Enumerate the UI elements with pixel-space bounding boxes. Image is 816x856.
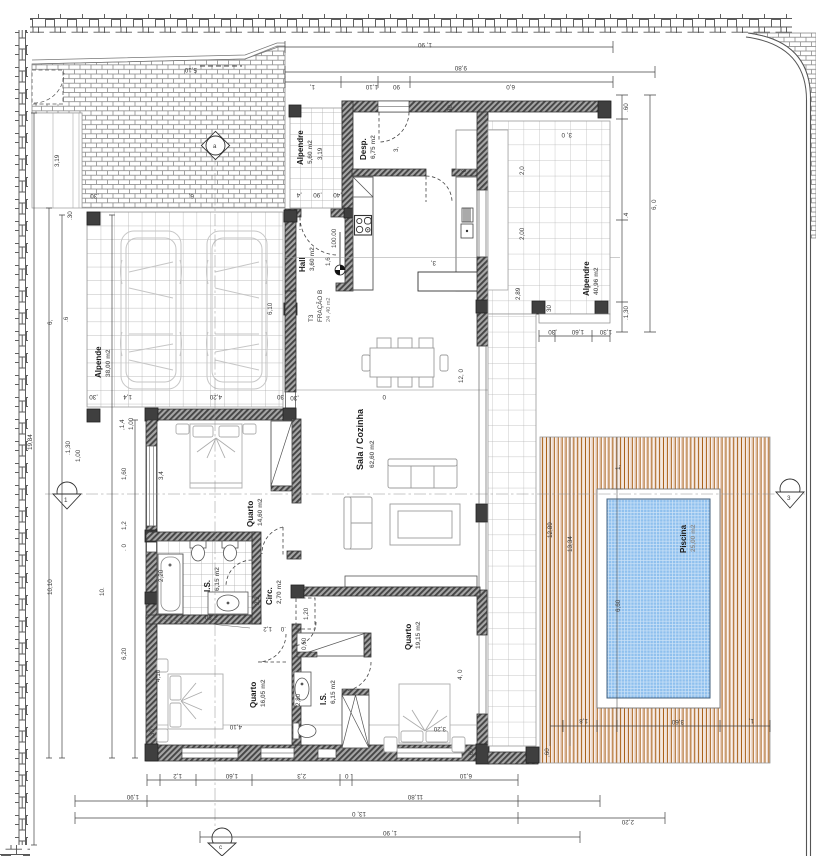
svg-text:.6: .6 — [63, 316, 70, 322]
svg-text:3,60: 3,60 — [671, 718, 684, 725]
svg-text:.0: .0 — [280, 625, 286, 632]
svg-text:16,05 m2: 16,05 m2 — [260, 679, 267, 707]
svg-text:1, 90: 1, 90 — [382, 829, 397, 836]
svg-text:1,: 1, — [748, 717, 754, 724]
svg-text:6,: 6, — [47, 319, 54, 325]
svg-text:.30: .30 — [67, 211, 74, 220]
svg-text:1,60: 1,60 — [121, 467, 128, 480]
svg-text:,30: ,30 — [290, 394, 299, 401]
svg-text:4,10: 4,10 — [155, 669, 162, 682]
svg-text:1,20: 1,20 — [303, 607, 310, 620]
svg-text:25,00 m2: 25,00 m2 — [690, 524, 697, 552]
svg-text:30: 30 — [447, 104, 454, 112]
svg-text:1,2: 1,2 — [263, 625, 272, 632]
svg-text:1,00: 1,00 — [75, 449, 82, 462]
svg-text:100.00: 100.00 — [331, 228, 338, 248]
svg-text:3,19: 3,19 — [317, 147, 324, 160]
svg-text:3, 0: 3, 0 — [561, 131, 572, 138]
svg-text:6,60: 6,60 — [615, 599, 622, 612]
svg-text:6,10: 6,10 — [267, 302, 274, 315]
svg-text:2,20: 2,20 — [158, 569, 165, 582]
svg-text:,40: ,40 — [333, 191, 342, 198]
svg-text:11,80: 11,80 — [407, 793, 423, 800]
svg-text:4,10: 4,10 — [229, 723, 242, 730]
svg-text:. 0: . 0 — [121, 544, 128, 551]
svg-text:19,84: 19,84 — [27, 434, 34, 450]
svg-text:1: 1 — [64, 497, 68, 504]
svg-text:2,3: 2,3 — [297, 772, 306, 779]
svg-text:6, 0: 6, 0 — [651, 199, 658, 210]
svg-text:30: 30 — [546, 304, 553, 312]
svg-text:1,: 1, — [615, 464, 622, 470]
svg-text:62,60 m2: 62,60 m2 — [369, 440, 376, 468]
svg-text:. 0: . 0 — [345, 772, 352, 779]
svg-text:13, 0: 13, 0 — [351, 810, 366, 817]
svg-text:2,20: 2,20 — [621, 818, 634, 825]
svg-text:13,34: 13,34 — [567, 536, 574, 552]
svg-text:2,2: 2,2 — [254, 596, 261, 605]
svg-text:2,70 m2: 2,70 m2 — [276, 580, 283, 604]
svg-text:Desp.: Desp. — [359, 138, 368, 160]
svg-text:Circ.: Circ. — [265, 587, 274, 605]
svg-text:2,00: 2,00 — [519, 227, 526, 240]
svg-text:6,15 m2: 6,15 m2 — [330, 680, 337, 704]
svg-text:c: c — [219, 844, 222, 851]
svg-text:.4: .4 — [623, 212, 630, 218]
svg-text:3,20: 3,20 — [433, 725, 446, 732]
svg-text:1, 90: 1, 90 — [417, 41, 432, 48]
svg-text:,60: ,60 — [544, 748, 551, 757]
svg-text:3,19: 3,19 — [54, 154, 61, 167]
svg-text:.1,30: .1,30 — [623, 305, 630, 320]
svg-text:Alpende: Alpende — [94, 346, 103, 378]
svg-text:,90: ,90 — [313, 191, 322, 198]
svg-text:1,10: 1,10 — [365, 83, 378, 90]
svg-text:T3: T3 — [308, 314, 315, 322]
svg-text:Piscina: Piscina — [679, 524, 688, 553]
svg-text:1,90: 1,90 — [126, 793, 139, 800]
svg-text:2,0: 2,0 — [519, 166, 526, 175]
svg-text:90: 90 — [392, 83, 400, 90]
svg-text:1,2: 1,2 — [173, 772, 182, 779]
svg-text:1,60: 1,60 — [225, 772, 238, 779]
svg-text:Sala / Cozinha: Sala / Cozinha — [355, 408, 365, 470]
svg-text:3,60 m2: 3,60 m2 — [309, 247, 316, 271]
svg-text:5,60 m2: 5,60 m2 — [307, 140, 314, 164]
svg-text:6,20: 6,20 — [121, 647, 128, 660]
svg-text:Alpendre: Alpendre — [296, 130, 305, 165]
svg-text:12,89: 12,89 — [547, 522, 554, 538]
svg-text:10,10: 10,10 — [47, 579, 54, 595]
svg-text:1,2: 1,2 — [121, 521, 128, 530]
svg-text:5,10: 5,10 — [184, 66, 197, 73]
svg-text:Quarto: Quarto — [404, 624, 413, 650]
svg-text:1,4: 1,4 — [123, 393, 132, 400]
svg-text:6,: 6, — [188, 192, 194, 199]
svg-text:,4: ,4 — [296, 191, 302, 198]
svg-text:2,89: 2,89 — [515, 287, 522, 300]
svg-text:14,60 m2: 14,60 m2 — [257, 498, 264, 526]
svg-text:3,: 3, — [393, 146, 400, 152]
svg-text:40,96 m2: 40,96 m2 — [593, 267, 600, 295]
svg-text:3,: 3, — [430, 259, 436, 266]
svg-text:0,60: 0,60 — [301, 637, 308, 650]
svg-text:1,30: 1,30 — [599, 328, 612, 335]
svg-text:Quarto: Quarto — [249, 682, 258, 708]
svg-text:10.: 10. — [99, 587, 106, 596]
svg-text:1,6: 1,6 — [325, 257, 332, 266]
svg-text:0: 0 — [382, 393, 386, 400]
svg-text:FRAÇÃO B: FRAÇÃO B — [315, 290, 324, 322]
svg-text:2,80: 2,80 — [204, 613, 217, 621]
svg-text:Alpendre: Alpendre — [582, 261, 591, 296]
svg-text:Hall: Hall — [298, 257, 307, 272]
svg-text:19,15 m2: 19,15 m2 — [415, 621, 422, 649]
svg-text:30: 30 — [276, 393, 284, 400]
svg-text:,60: ,60 — [468, 748, 475, 757]
svg-text:I.S.: I.S. — [203, 580, 212, 592]
svg-text:3,4: 3,4 — [158, 471, 165, 480]
svg-text:3: 3 — [787, 495, 791, 502]
svg-text:I.S.: I.S. — [319, 693, 328, 705]
svg-text:Quarto: Quarto — [246, 501, 255, 527]
svg-text:,1,4: ,1,4 — [119, 419, 126, 430]
svg-text:.60: .60 — [623, 103, 630, 112]
svg-text:2,80: 2,80 — [295, 693, 302, 706]
svg-text:1,: 1, — [309, 83, 315, 90]
svg-text:1,60: 1,60 — [571, 328, 584, 335]
svg-text:24 ,40 m2: 24 ,40 m2 — [326, 298, 332, 322]
svg-text:12, 0: 12, 0 — [458, 368, 465, 383]
svg-text:,30: ,30 — [548, 328, 557, 335]
svg-text:4,20: 4,20 — [209, 393, 222, 400]
svg-text:1,00: 1,00 — [128, 417, 135, 430]
svg-text:.1,30: .1,30 — [65, 440, 72, 455]
svg-text:6,75 m2: 6,75 m2 — [370, 135, 377, 159]
svg-text:4, 0: 4, 0 — [457, 669, 464, 680]
svg-text:1,8: 1,8 — [579, 717, 588, 724]
svg-text:9,80: 9,80 — [454, 64, 467, 71]
svg-text:,30: ,30 — [149, 729, 156, 738]
svg-text:6,10: 6,10 — [459, 772, 472, 779]
svg-text:,30: ,30 — [90, 192, 99, 199]
svg-text:,30: ,30 — [89, 393, 98, 400]
svg-text:38,00 m2: 38,00 m2 — [105, 349, 112, 377]
svg-text:6,0: 6,0 — [506, 83, 515, 90]
